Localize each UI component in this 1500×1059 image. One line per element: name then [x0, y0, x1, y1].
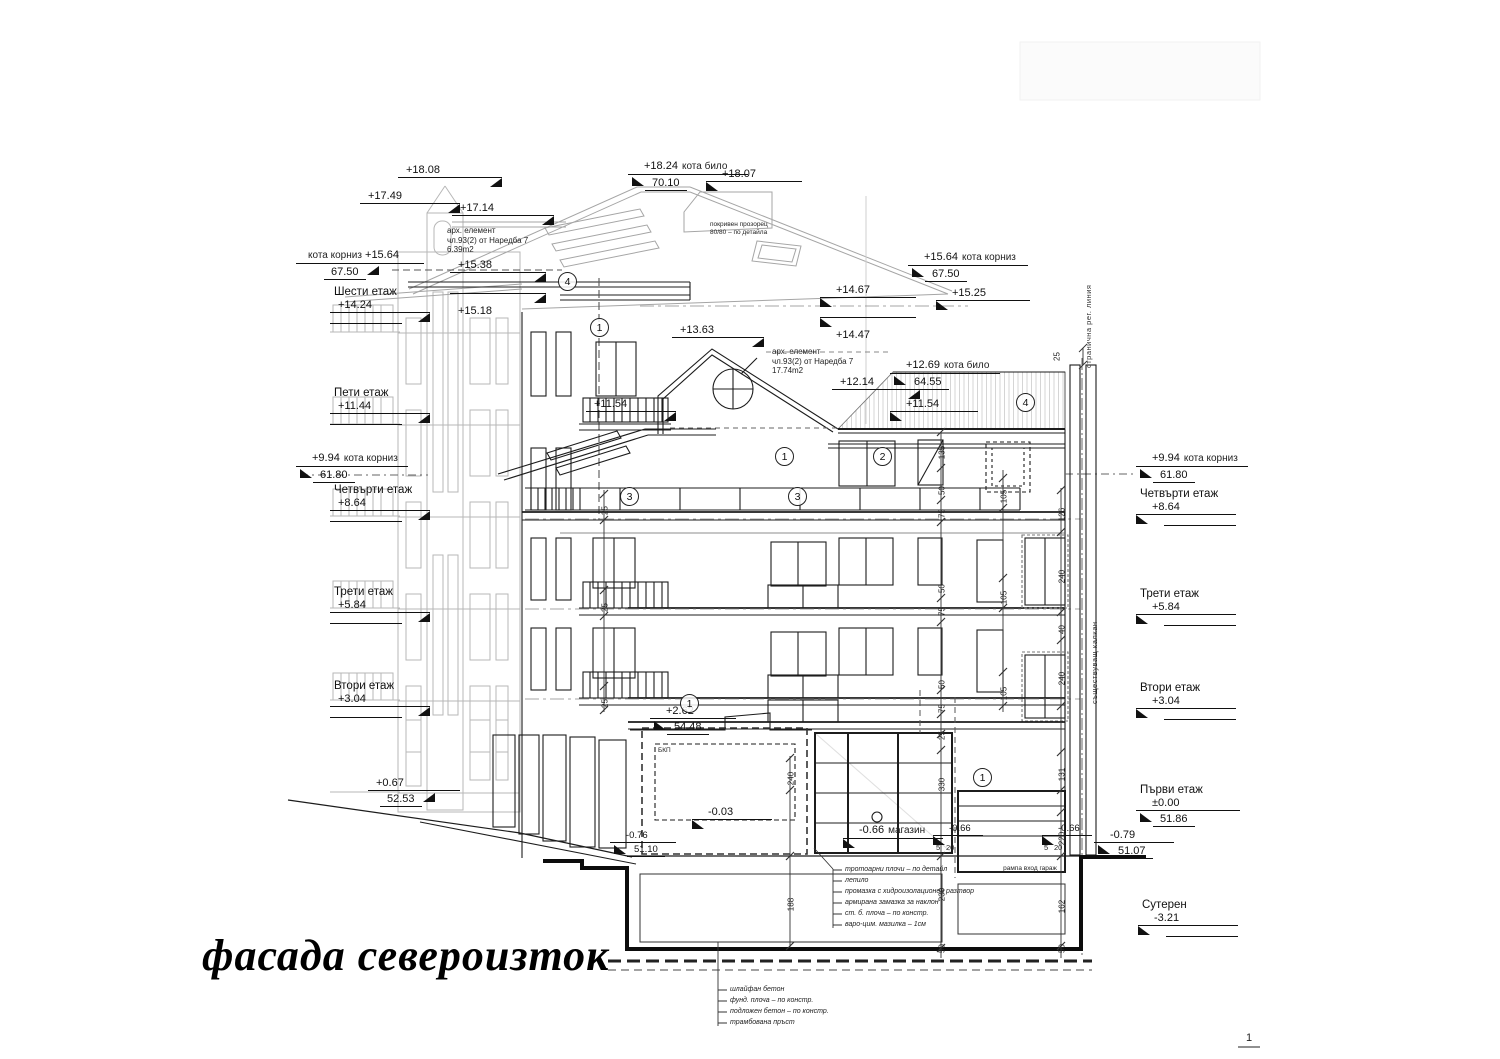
callout-number: 3 [795, 491, 801, 503]
elevation-value: -0.66 [859, 824, 884, 836]
elevation-mark-icon [418, 707, 430, 716]
elevation-value: +12.14 [840, 376, 874, 388]
floor-elevation: ±0.00 [1152, 797, 1179, 809]
dim-label: 40 [1058, 617, 1067, 643]
foundation-materials-list: шлайфан бетон фунд. плоча – по констр. п… [730, 984, 829, 1028]
page-number: 1 [1246, 1032, 1252, 1044]
elevation-abs-value: 61.80 [1153, 469, 1195, 483]
elevation-mark-1714: +17.14 [452, 202, 554, 218]
shop-label: магазин [888, 825, 925, 836]
callout-number: 4 [1023, 397, 1029, 409]
elevation-mark-1807: +18.07 [706, 168, 802, 184]
dim-label: 5 [1044, 843, 1048, 852]
erased-stamp-area [1020, 42, 1260, 100]
elevation-mark-994-left: +9.94кота корниз 61.80 [296, 452, 408, 483]
dim-label: 330 [938, 772, 947, 798]
floor-elevation: +11.44 [338, 400, 371, 412]
elevation-value: +15.38 [458, 259, 492, 271]
elevation-mark-icon [1136, 709, 1148, 718]
elevation-mark-1538: +15.38 [450, 259, 546, 275]
floor-mark-2-right: Втори етаж +3.04 [1136, 682, 1236, 720]
elevation-value: +14.67 [836, 284, 870, 296]
elevation-mark-1154-left: +11.54 [586, 398, 676, 414]
elevation-value: +15.64 [365, 249, 399, 261]
floor-name: Сутерен [1138, 899, 1238, 911]
floor-elevation: -3.21 [1154, 912, 1179, 924]
dim-label: 240 [1058, 666, 1067, 692]
callout-number: 1 [980, 772, 986, 784]
elevation-value: +18.07 [722, 168, 756, 180]
callout-number: 1 [782, 451, 788, 463]
drawing-sheet: +18.08 +17.49 +17.14 +18.24кота било 70.… [0, 0, 1500, 1059]
elevation-mark-icon [820, 298, 832, 307]
elevation-mark-icon [843, 839, 855, 848]
elevation-abs-value: 67.50 [324, 266, 366, 280]
dim-label: 20 [946, 843, 954, 852]
dim-label: 25 [601, 498, 610, 524]
elevation-mark-003: -0.03 [692, 806, 772, 822]
floor-mark-basement: Сутерен -3.21 [1138, 899, 1238, 937]
callout-4: 4 [1016, 393, 1035, 412]
callout-number: 1 [687, 698, 693, 710]
floor-elevation: +8.64 [338, 497, 366, 509]
floor-mark-1-right: Първи етаж ±0.00 51.86 [1136, 784, 1240, 827]
elevation-mark-1808: +18.08 [398, 164, 502, 180]
dim-label: 25 [601, 595, 610, 621]
elevation-mark-1749: +17.49 [360, 190, 460, 206]
dim-label: 50 [938, 936, 947, 962]
elevation-value: +9.94 [1152, 452, 1180, 464]
dim-label: 25 [938, 723, 947, 749]
floor-name: Втори етаж [330, 680, 430, 692]
elevation-abs-value: 51.07 [1111, 845, 1153, 859]
callout-1: 1 [775, 447, 794, 466]
floor-elevation: +3.04 [1152, 695, 1180, 707]
floor-name: Първи етаж [1136, 784, 1240, 796]
dim-label: 25 [601, 691, 610, 717]
elevation-mark-icon [936, 301, 948, 310]
floor-mark-6: Шести етаж +14.24 [330, 286, 430, 324]
dim-label: 75 [938, 501, 947, 527]
floor-name: Пети етаж [330, 387, 430, 399]
callout-1: 1 [680, 694, 699, 713]
elevation-value: +11.54 [594, 398, 627, 410]
elevation-mark-067: +0.67 52.53 [368, 777, 460, 807]
callout-3: 3 [620, 487, 639, 506]
elevation-value: +0.67 [376, 777, 404, 789]
elevation-mark-1564-right: +15.64кота корниз 67.50 [908, 251, 1028, 282]
floor-elevation: +8.64 [1152, 501, 1180, 513]
elevation-value: +18.24 [644, 160, 678, 172]
elevation-mark-066-shop: -0.66магазин [843, 824, 943, 841]
elevation-abs-value: 51.86 [1153, 813, 1195, 827]
dim-label: 135 [938, 440, 947, 466]
elevation-mark-icon [912, 268, 924, 277]
elevation-mark-icon [1136, 515, 1148, 524]
dim-label: 131 [1058, 762, 1067, 788]
elevation-mark-icon [1138, 926, 1150, 935]
elevation-mark-icon [418, 414, 430, 423]
elevation-abs-value: 70.10 [645, 177, 687, 191]
elevation-value: -0.03 [708, 806, 733, 818]
elevation-mark-066-garage-right: -0.66 [1042, 824, 1092, 838]
floor-elevation: +3.04 [338, 693, 366, 705]
elevation-mark-icon [542, 216, 554, 225]
floor-name: Четвърти етаж [1136, 488, 1236, 500]
level-label: кота корниз [308, 250, 362, 261]
dim-label: 50 [1058, 936, 1067, 962]
elevation-mark-1467: +14.67 [820, 284, 916, 300]
elevation-mark-1154-right: +11.54 [890, 398, 978, 414]
dim-label: 25 [1053, 344, 1062, 370]
callout-number: 4 [565, 276, 571, 288]
callout-2: 2 [873, 447, 892, 466]
elevation-value: -0.76 [626, 830, 648, 841]
elevation-mark-icon [367, 266, 379, 275]
elevation-value: +15.25 [952, 287, 986, 299]
elevation-mark-icon [654, 721, 666, 730]
elevation-value: +13.63 [680, 324, 714, 336]
elevation-mark-icon [632, 177, 644, 186]
dim-label: 240 [1058, 564, 1067, 590]
dim-label: 126 [1058, 502, 1067, 528]
elevation-abs-value: 61.80 [313, 469, 355, 483]
elevation-value: +11.54 [906, 398, 939, 410]
floor-name: Трети етаж [330, 586, 430, 598]
dim-label: 230 [938, 882, 947, 908]
elevation-mark-1214: +12.14 [832, 376, 920, 392]
elevation-value: +17.49 [368, 190, 402, 202]
floor-name: Шести етаж [330, 286, 430, 298]
elevation-mark-1363: +13.63 [672, 324, 764, 340]
dim-label: 105 [1000, 484, 1009, 510]
floor-mark-4-right: Четвърти етаж +8.64 [1136, 488, 1236, 526]
elevation-value: +15.64 [924, 251, 958, 263]
floor-elevation: +5.84 [338, 599, 366, 611]
elevation-abs-value: 51.10 [627, 845, 665, 857]
elevation-value: -0.66 [949, 823, 971, 834]
elevation-mark-icon [534, 294, 546, 303]
floor-elevation: +14.24 [338, 299, 372, 311]
floor-mark-3-left: Трети етаж +5.84 [330, 586, 430, 624]
callout-number: 2 [880, 451, 886, 463]
floor-mark-2-left: Втори етаж +3.04 [330, 680, 430, 718]
level-label: кота корниз [344, 453, 398, 464]
floor-name: Втори етаж [1136, 682, 1236, 694]
dim-label: 105 [1000, 681, 1009, 707]
elevation-value: +12.69 [906, 359, 940, 371]
elevation-mark-icon [614, 845, 626, 854]
dim-label: 50 [938, 672, 947, 698]
elevation-mark-icon [418, 613, 430, 622]
elevation-mark-icon [890, 412, 902, 421]
floor-elevation: +5.84 [1152, 601, 1180, 613]
elevation-mark-icon [664, 412, 676, 421]
elevation-mark-icon [418, 511, 430, 520]
arch-element-note-2: арх. елементчл.93(2) от Наредба 717.74m2 [772, 347, 853, 376]
dim-label: 162 [1058, 894, 1067, 920]
elevation-mark-icon [706, 182, 718, 191]
elevation-mark-icon [534, 273, 546, 282]
elevation-mark-1447: +14.47 [820, 317, 916, 342]
callout-number: 3 [627, 491, 633, 503]
elevation-mark-1564-left: кота корниз +15.64 67.50 [296, 249, 424, 280]
elevation-mark-1518: +15.18 [450, 293, 546, 318]
elevation-mark-icon [692, 820, 704, 829]
callout-1: 1 [973, 768, 992, 787]
level-label: кота корниз [962, 252, 1016, 263]
facade-linework [0, 0, 1500, 1059]
level-label: кота било [944, 360, 989, 371]
floor-mark-3-right: Трети етаж +5.84 [1136, 588, 1236, 626]
elevation-mark-076: -0.76 51.10 [610, 831, 676, 857]
elevation-value: +18.08 [406, 164, 440, 176]
elevation-mark-icon [300, 469, 312, 478]
bkp-label: БКП [658, 747, 671, 755]
elevation-mark-icon [1136, 615, 1148, 624]
elevation-mark-1525: +15.25 [936, 287, 1030, 303]
dim-label: 75 [938, 599, 947, 625]
floor-name: Четвърти етаж [330, 484, 430, 496]
elevation-value: -0.79 [1110, 829, 1135, 841]
elevation-mark-icon [752, 338, 764, 347]
elevation-mark-icon [1140, 813, 1152, 822]
elevation-mark-066-garage-left: -0.66 [933, 824, 983, 838]
callout-1: 1 [590, 318, 609, 337]
callout-4: 4 [558, 272, 577, 291]
elevation-mark-icon [418, 313, 430, 322]
callout-number: 1 [597, 322, 603, 334]
dim-label: 75 [938, 696, 947, 722]
dim-label: 5 [936, 843, 940, 852]
roof-window-note: покривен прозорец80/80 – по детайла [710, 221, 768, 236]
floor-mark-4-left: Четвърти етаж +8.64 [330, 484, 430, 522]
floor-mark-5: Пети етаж +11.44 [330, 387, 430, 425]
elevation-mark-994-right: +9.94кота корниз 61.80 [1136, 452, 1248, 483]
dim-label: 240 [787, 766, 796, 792]
elevation-mark-icon [423, 793, 435, 802]
dim-label: 188 [787, 892, 796, 918]
elevation-abs-value: 54.48 [667, 721, 709, 735]
elevation-mark-icon [1098, 845, 1110, 854]
arch-element-note-1: арх. елементчл.93(2) от Наредба 76.39m2 [447, 226, 528, 255]
elevation-mark-icon [1140, 469, 1152, 478]
side-regulation-line-label: странична рег. линия [1084, 282, 1093, 368]
elevation-value: +9.94 [312, 452, 340, 464]
elevation-abs-value: 67.50 [925, 268, 967, 282]
elevation-mark-icon [820, 318, 832, 327]
callout-3: 3 [788, 487, 807, 506]
elevation-value: +14.47 [836, 329, 870, 341]
elevation-mark-icon [490, 178, 502, 187]
party-wall-label: съществуващ калкан [1090, 608, 1099, 704]
garage-ramp-label: рампа вход гараж [990, 865, 1070, 873]
drawing-title: фасада североизток [202, 930, 609, 981]
dim-label: 105 [1000, 585, 1009, 611]
elevation-abs-value: 52.53 [380, 793, 422, 807]
elevation-mark-079: -0.79 51.07 [1094, 829, 1174, 859]
dim-label: 20 [1054, 843, 1062, 852]
floor-name: Трети етаж [1136, 588, 1236, 600]
floor-materials-list: тротоарни плочи – по детайл лепило прома… [845, 864, 974, 930]
level-label: кота корниз [1184, 453, 1238, 464]
elevation-value: +15.18 [458, 305, 492, 317]
elevation-value: +17.14 [460, 202, 494, 214]
